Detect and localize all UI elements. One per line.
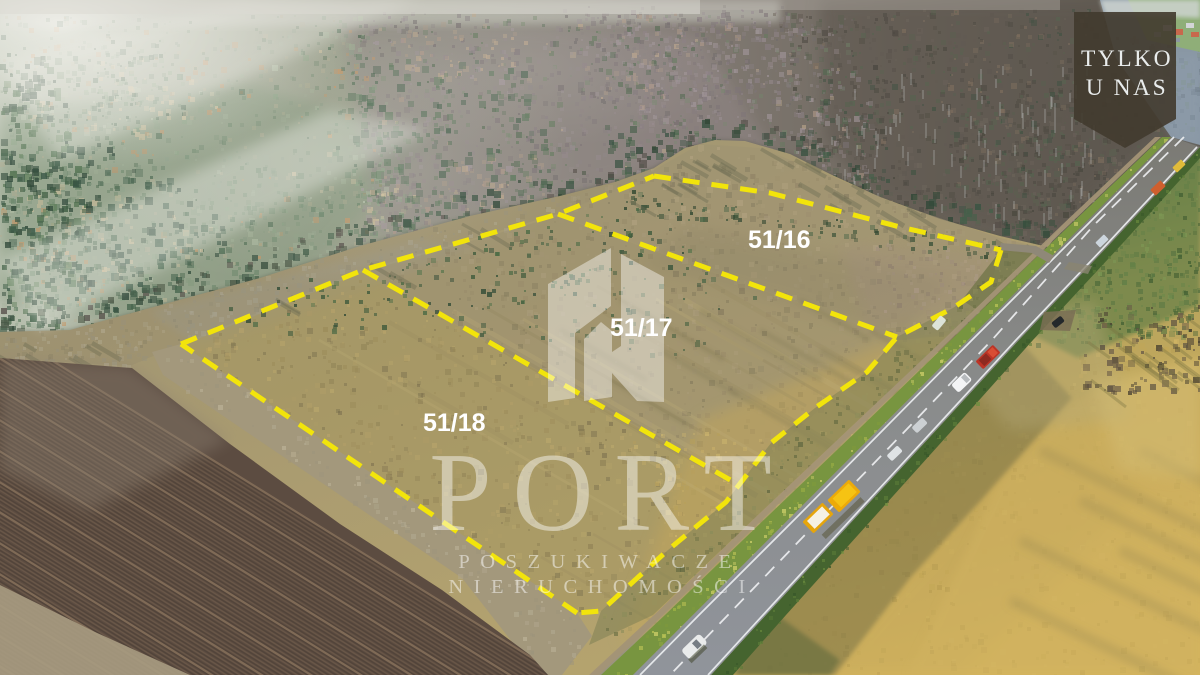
svg-text:POSZUKIWACZE: POSZUKIWACZE	[458, 551, 741, 573]
svg-text:TYLKO: TYLKO	[1081, 46, 1173, 72]
svg-text:U NAS: U NAS	[1086, 75, 1168, 101]
svg-text:PORT: PORT	[429, 431, 793, 555]
svg-text:51/16: 51/16	[748, 226, 811, 254]
svg-text:NIERUCHOMOŚCI: NIERUCHOMOŚCI	[448, 574, 755, 598]
